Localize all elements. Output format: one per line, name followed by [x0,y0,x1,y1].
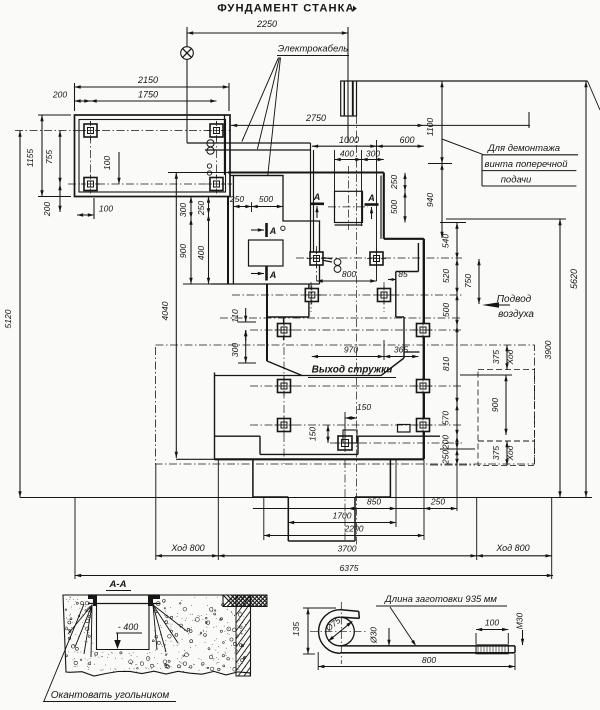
svg-text:800: 800 [342,269,356,279]
svg-text:300: 300 [366,148,380,158]
svg-text:500: 500 [389,200,399,214]
svg-text:200: 200 [52,90,67,100]
svg-text:900: 900 [178,244,188,258]
svg-text:500: 500 [441,303,451,317]
svg-text:подачи: подачи [501,175,532,186]
svg-text:100: 100 [102,156,112,170]
svg-text:570: 570 [441,411,451,425]
svg-text:Для демонтажа: Для демонтажа [487,143,560,154]
svg-text:2150: 2150 [137,75,158,85]
svg-text:200: 200 [42,202,52,217]
svg-text:4040: 4040 [160,301,170,320]
svg-text:540: 540 [441,234,451,248]
svg-text:3700: 3700 [338,544,357,554]
svg-text:1155: 1155 [25,149,35,168]
svg-text:1700: 1700 [333,511,352,521]
svg-text:М30: М30 [515,612,525,629]
svg-text:200: 200 [441,435,451,450]
svg-text:135: 135 [291,622,301,636]
svg-text:А-А: А-А [109,579,127,590]
svg-text:A: A [269,270,277,280]
svg-text:400: 400 [340,148,354,158]
svg-text:520: 520 [441,269,451,283]
svg-text:85: 85 [398,269,408,279]
svg-text:940: 940 [425,193,435,207]
svg-text:900: 900 [490,398,500,412]
svg-text:Ход: Ход [505,349,515,365]
svg-text:970: 970 [344,345,358,355]
svg-text:Электрокабель: Электрокабель [278,44,349,55]
svg-text:375: 375 [491,446,501,460]
svg-text:1750: 1750 [138,90,158,100]
svg-text:100: 100 [99,204,113,214]
svg-text:810: 810 [441,357,451,371]
svg-text:150: 150 [357,402,371,412]
svg-text:755: 755 [44,150,54,164]
svg-text:250: 250 [196,201,206,216]
svg-text:Выход стружки: Выход стружки [312,365,393,376]
svg-text:Ход 800: Ход 800 [495,543,529,553]
svg-text:Ø30: Ø30 [369,627,379,644]
svg-text:A: A [269,226,277,236]
svg-text:365: 365 [394,345,408,355]
svg-text:400: 400 [196,246,206,260]
svg-text:500: 500 [259,194,273,204]
svg-text:100: 100 [485,618,499,628]
svg-text:250: 250 [430,497,445,507]
svg-text:А: А [313,192,321,202]
svg-text:110: 110 [230,309,240,323]
svg-text:300: 300 [178,203,188,217]
svg-text:2250: 2250 [256,19,277,29]
svg-text:250: 250 [229,194,244,204]
svg-text:850: 850 [367,497,381,507]
svg-text:6375: 6375 [340,563,359,573]
svg-text:Окантовать угольником: Окантовать угольником [51,690,170,701]
svg-text:Ход: Ход [505,445,515,461]
svg-text:2750: 2750 [305,113,326,123]
svg-text:750: 750 [463,274,473,288]
svg-text:300: 300 [230,343,240,357]
svg-text:5620: 5620 [569,269,579,289]
svg-text:250: 250 [389,175,399,190]
svg-text:1000: 1000 [339,135,359,145]
svg-text:800: 800 [422,655,436,665]
svg-text:ФУНДАМЕНТ СТАНКА: ФУНДАМЕНТ СТАНКА [217,3,355,15]
svg-text:Ход 800: Ход 800 [170,543,204,553]
svg-text:2200: 2200 [344,524,364,534]
svg-text:А: А [367,193,375,203]
svg-text:150: 150 [308,427,318,441]
svg-text:600: 600 [399,135,414,145]
svg-text:Подвод: Подвод [497,294,532,305]
svg-text:Длина заготовки 935 мм: Длина заготовки 935 мм [384,594,497,605]
svg-text:3900: 3900 [543,340,553,359]
svg-text:1100: 1100 [425,118,435,137]
svg-text:375: 375 [491,350,501,364]
svg-text:250: 250 [441,450,451,465]
svg-text:воздуха: воздуха [498,309,534,320]
svg-text:винта поперечной: винта поперечной [485,159,569,170]
svg-text:5120: 5120 [3,309,13,328]
svg-text:- 400: - 400 [118,622,139,632]
